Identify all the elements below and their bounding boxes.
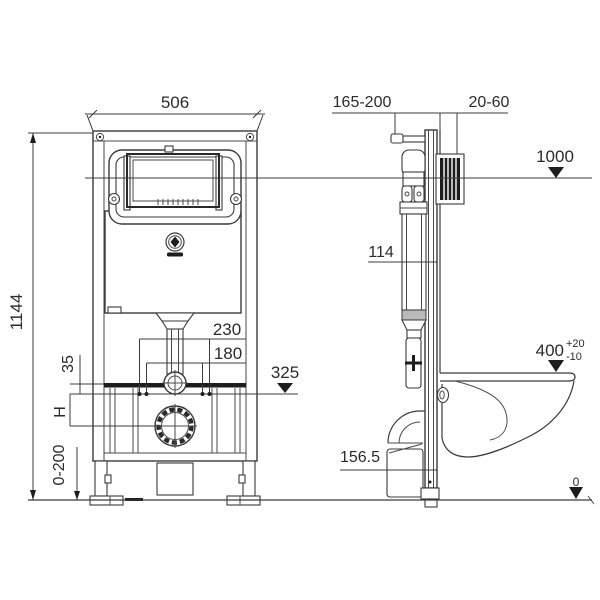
dim-label-180: 180 xyxy=(214,344,242,363)
dim-label-156-5: 156.5 xyxy=(340,449,380,466)
dim-label-400: 400 xyxy=(536,341,564,360)
side-view xyxy=(387,129,575,507)
side-rail xyxy=(425,130,437,488)
floor-zero-arrow-icon xyxy=(569,487,583,499)
dim-label-0-200: 0-200 xyxy=(51,444,68,485)
dim-label-400-minus: -10 xyxy=(566,351,582,363)
dim-label-230: 230 xyxy=(213,320,241,339)
bottom-panel xyxy=(157,463,193,495)
dim-label-325: 325 xyxy=(271,363,299,382)
dim-label-114: 114 xyxy=(368,244,394,261)
drain-elbow-side xyxy=(387,411,425,497)
dim-label-1000: 1000 xyxy=(536,147,574,166)
toilet-bowl xyxy=(438,373,576,457)
level-marker-1000-icon xyxy=(548,167,564,178)
wall-plate-block xyxy=(436,154,464,204)
wall-bracket xyxy=(391,129,425,143)
technical-drawing-page: 1000 325 230 180 506 1144 35 xyxy=(0,0,600,600)
front-view xyxy=(90,131,260,505)
level-marker-325-icon xyxy=(277,383,293,393)
dim-label-1144: 1144 xyxy=(7,294,26,331)
dim-label-506: 506 xyxy=(161,93,189,112)
level-marker-400-icon xyxy=(548,360,564,372)
toilet-frame-installation-diagram: 1000 325 230 180 506 1144 35 xyxy=(0,0,600,600)
dim-label-20-60: 20-60 xyxy=(469,94,510,111)
dim-label-165-200: 165-200 xyxy=(333,94,392,111)
dim-label-35: 35 xyxy=(60,355,77,373)
dim-label-400-plus: +20 xyxy=(566,338,585,350)
dim-label-H: H xyxy=(52,406,69,418)
dim-label-0: 0 xyxy=(573,475,580,489)
flush-pipe-side xyxy=(405,338,422,388)
